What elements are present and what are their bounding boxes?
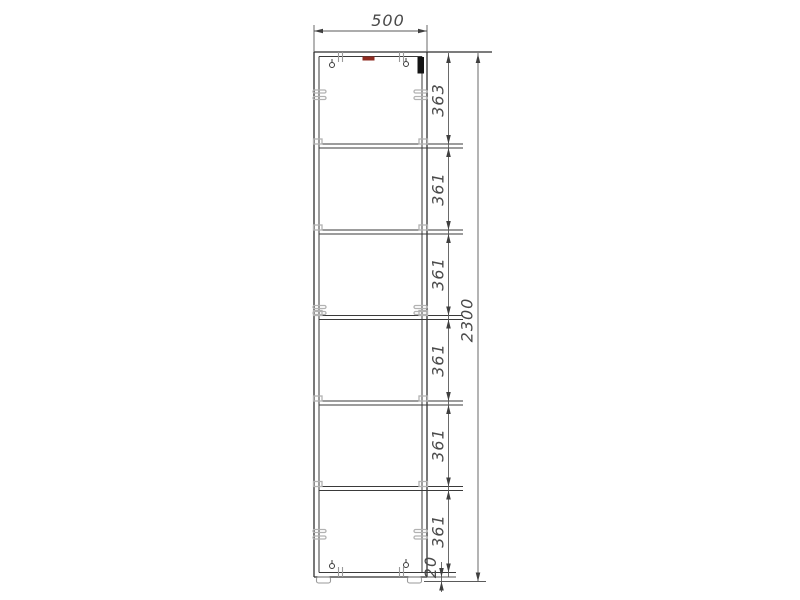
shelf-line <box>319 144 463 148</box>
dim-section-label: 361 <box>429 343 448 377</box>
shelf-end-fittings <box>314 139 428 487</box>
foot-dimension: 20 <box>421 556 444 592</box>
carcass-outer-edge <box>314 52 427 577</box>
dim-section-label: 363 <box>429 83 448 117</box>
hinge-plate-mark <box>418 57 425 74</box>
dim-width-label: 500 <box>371 11 405 30</box>
shelf-line <box>319 487 463 491</box>
cam-lock-fittings <box>313 90 427 539</box>
dim-foot-label: 20 <box>421 556 440 578</box>
shelf-line <box>319 401 463 405</box>
shelf-line <box>319 316 463 320</box>
dim-section-label: 361 <box>429 428 448 462</box>
dim-section-label: 361 <box>429 257 448 291</box>
overall-height-dimension: 2300 <box>458 53 481 582</box>
foot-left <box>317 577 331 583</box>
drawing-canvas: 500 363 361 361 361 361 361 20 2300 <box>0 0 800 600</box>
dowel-marks <box>339 52 404 577</box>
shelf-line <box>319 230 463 234</box>
width-dimension: 500 <box>314 11 427 52</box>
cabinet-feet <box>317 577 422 583</box>
red-marker <box>363 57 375 61</box>
cabinet-elevation-drawing: 500 363 361 361 361 361 361 20 2300 <box>0 0 800 600</box>
arrowhead-right <box>418 29 427 34</box>
dim-total-height-label: 2300 <box>458 298 477 343</box>
foot-right <box>408 577 422 583</box>
screw-hole-marks <box>330 58 409 569</box>
arrowhead-left <box>314 29 323 34</box>
dim-section-label: 361 <box>429 514 448 548</box>
dim-section-label: 361 <box>429 172 448 206</box>
